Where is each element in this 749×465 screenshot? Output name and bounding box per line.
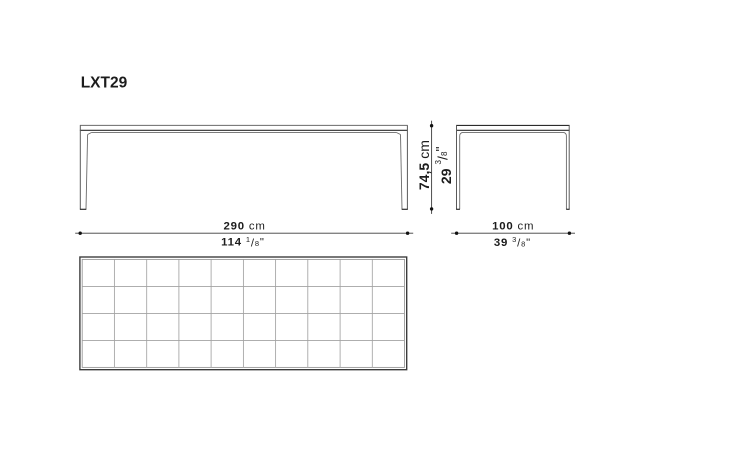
svg-text:LXT29: LXT29 xyxy=(81,74,128,91)
svg-text:290 cm: 290 cm xyxy=(224,220,266,232)
svg-text:100 cm: 100 cm xyxy=(492,220,534,232)
svg-text:74,5 cm: 74,5 cm xyxy=(416,140,432,190)
